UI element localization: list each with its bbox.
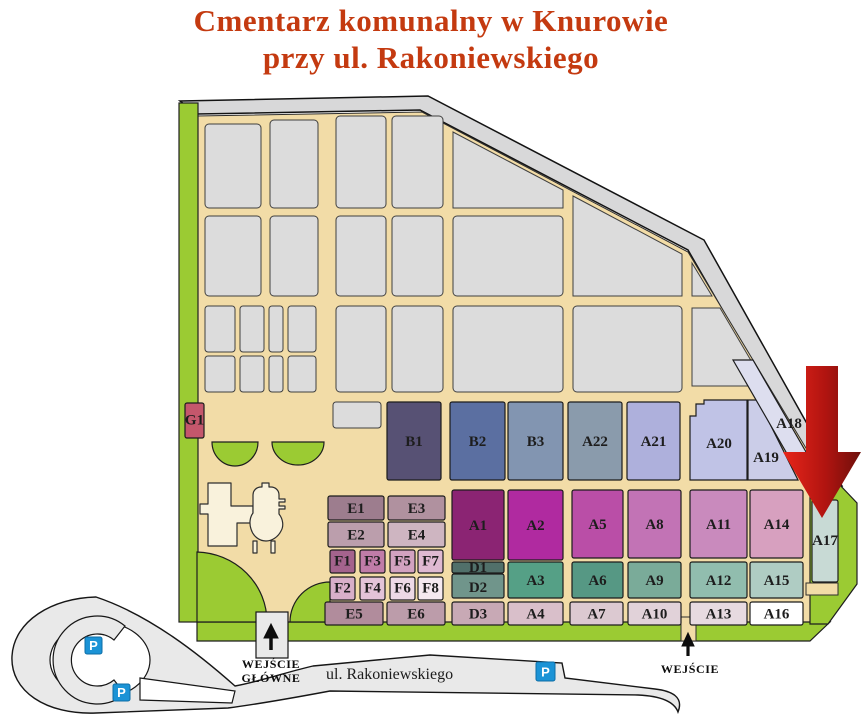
section-F6: F6: [390, 577, 415, 600]
title-line-1: Cmentarz komunalny w Knurowie: [0, 2, 862, 39]
section-label: A4: [526, 607, 545, 623]
section-E6: E6: [387, 602, 445, 625]
section-label: A11: [706, 517, 731, 533]
section-label: B3: [527, 434, 545, 450]
parking-icon-1: P: [85, 637, 102, 654]
section-label: A7: [587, 607, 606, 623]
section-label: A16: [764, 607, 790, 623]
section-label: A8: [645, 517, 663, 533]
section-label: F3: [364, 554, 381, 570]
section-label: A10: [642, 607, 668, 623]
section-A22: A22: [568, 402, 622, 480]
parking-icon-1-letter: P: [89, 638, 98, 653]
section-A4: A4: [508, 602, 563, 625]
section-A1: A1: [452, 490, 504, 560]
section-E2: E2: [328, 522, 384, 547]
section-label: A9: [645, 573, 663, 589]
section-F8: F8: [418, 577, 443, 600]
section-A16: A16: [750, 602, 803, 625]
section-G1: G1: [185, 403, 204, 438]
section-A8: A8: [628, 490, 681, 558]
unlabeled-plots: [205, 116, 766, 428]
section-A20: A20: [690, 400, 747, 480]
cemetery-map-svg: G1B1B2B3A22A21A20A19A18E1E3E2E4F1F3F5F7F…: [0, 0, 862, 722]
main-entrance-label-line1: WEJŚCIE: [242, 657, 300, 671]
parking-icon-2-letter: P: [117, 685, 126, 700]
section-F1: F1: [330, 550, 355, 573]
parking-icon-2: P: [113, 684, 130, 701]
section-A12: A12: [690, 562, 747, 598]
section-F5: F5: [390, 550, 415, 573]
section-A7: A7: [570, 602, 623, 625]
section-label: E4: [408, 528, 426, 544]
section-label: E2: [347, 528, 365, 544]
section-A14: A14: [750, 490, 803, 558]
section-label: E1: [347, 501, 365, 517]
section-label: A1: [469, 518, 487, 534]
section-label: B2: [469, 434, 487, 450]
section-A3: A3: [508, 562, 563, 598]
section-label: A3: [526, 573, 544, 589]
section-label: A22: [582, 434, 608, 450]
parking-icon-3-letter: P: [541, 665, 550, 680]
section-label: A5: [588, 517, 606, 533]
section-F3: F3: [360, 550, 385, 573]
section-label: F4: [364, 581, 381, 597]
section-label: A14: [764, 517, 790, 533]
section-label: A20: [706, 436, 732, 452]
section-F4: F4: [360, 577, 385, 600]
section-A6: A6: [572, 562, 623, 598]
section-label: A6: [588, 573, 607, 589]
page-title: Cmentarz komunalny w Knurowie przy ul. R…: [0, 2, 862, 76]
section-label: A18: [776, 416, 802, 432]
section-A13: A13: [690, 602, 747, 625]
section-E4: E4: [388, 522, 445, 547]
section-label: A17: [812, 533, 838, 549]
section-E5: E5: [325, 602, 383, 625]
section-label: F7: [422, 554, 439, 570]
section-label: A12: [706, 573, 732, 589]
section-D3: D3: [452, 602, 504, 625]
section-A10: A10: [628, 602, 681, 625]
section-label: A19: [753, 450, 779, 466]
section-label: G1: [185, 413, 204, 429]
parking-icon-3: P: [536, 662, 555, 681]
section-label: A2: [526, 518, 544, 534]
side-entrance-label: WEJŚCIE: [661, 662, 719, 676]
main-entrance-label-line2: GŁÓWNE: [242, 671, 301, 685]
street-label: ul. Rakoniewskiego: [326, 666, 453, 683]
section-label: E5: [345, 607, 363, 623]
section-label: A13: [706, 607, 732, 623]
section-label: D3: [469, 607, 487, 623]
section-D2: D2: [452, 574, 504, 598]
section-label: F5: [394, 554, 411, 570]
section-label: A21: [641, 434, 667, 450]
section-A15: A15: [750, 562, 803, 598]
section-label: F2: [334, 581, 351, 597]
section-label: F1: [334, 554, 351, 570]
section-A9: A9: [628, 562, 681, 598]
section-F2: F2: [330, 577, 355, 600]
section-label: F8: [422, 581, 439, 597]
section-label: F6: [394, 581, 411, 597]
section-label: A15: [764, 573, 790, 589]
title-line-2: przy ul. Rakoniewskiego: [0, 39, 862, 76]
section-F7: F7: [418, 550, 443, 573]
section-B2: B2: [450, 402, 505, 480]
section-E3: E3: [388, 496, 445, 520]
section-label: B1: [405, 434, 423, 450]
section-A21: A21: [627, 402, 680, 480]
section-E1: E1: [328, 496, 384, 520]
path-stub-a17: [806, 583, 838, 595]
section-label: D2: [469, 580, 487, 596]
section-A5: A5: [572, 490, 623, 558]
section-label: E6: [407, 607, 425, 623]
section-label: E3: [408, 501, 426, 517]
section-A11: A11: [690, 490, 747, 558]
cemetery-map-page: Cmentarz komunalny w Knurowie przy ul. R…: [0, 0, 862, 722]
green-strip-left: [179, 103, 198, 622]
section-A2: A2: [508, 490, 563, 560]
section-B3: B3: [508, 402, 563, 480]
section-B1: B1: [387, 402, 441, 480]
